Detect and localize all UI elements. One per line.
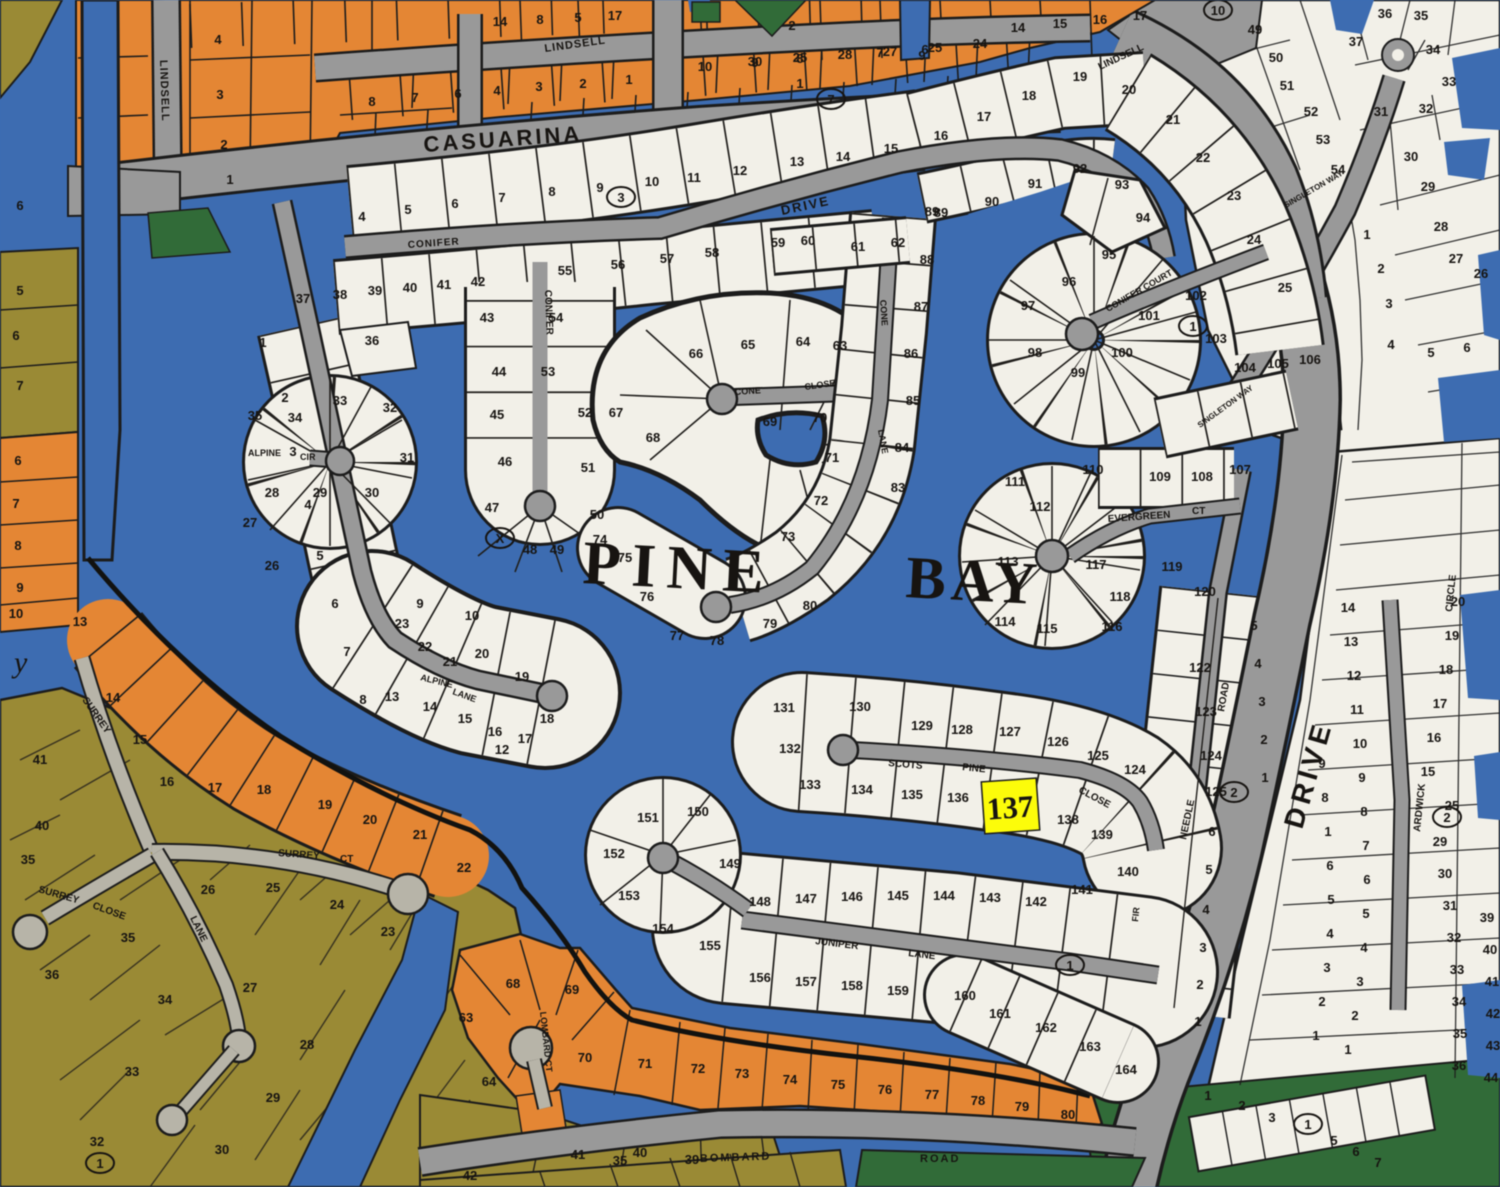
svg-text:14: 14 <box>836 149 851 164</box>
svg-text:26: 26 <box>265 558 279 573</box>
svg-text:72: 72 <box>814 493 828 508</box>
svg-text:32: 32 <box>1419 101 1433 116</box>
svg-text:68: 68 <box>506 976 520 991</box>
svg-text:10: 10 <box>645 174 659 189</box>
svg-text:79: 79 <box>763 616 777 631</box>
svg-text:6: 6 <box>921 42 928 57</box>
svg-text:40: 40 <box>403 280 417 295</box>
svg-text:40: 40 <box>35 818 49 833</box>
svg-text:43: 43 <box>1486 1038 1500 1053</box>
svg-text:31: 31 <box>1374 104 1388 119</box>
svg-text:7: 7 <box>876 45 883 60</box>
svg-text:100: 100 <box>1111 345 1133 360</box>
svg-text:14: 14 <box>106 690 121 705</box>
svg-text:50: 50 <box>590 507 604 522</box>
svg-text:CT: CT <box>340 854 353 865</box>
svg-text:8: 8 <box>536 12 543 27</box>
svg-text:6: 6 <box>1326 858 1333 873</box>
svg-text:16: 16 <box>1093 12 1107 27</box>
svg-text:20: 20 <box>475 646 489 661</box>
svg-text:45: 45 <box>490 407 504 422</box>
svg-text:2: 2 <box>1377 261 1384 276</box>
svg-text:70: 70 <box>813 410 827 425</box>
svg-text:42: 42 <box>463 1168 477 1183</box>
svg-text:3: 3 <box>1385 296 1392 311</box>
svg-text:162: 162 <box>1035 1020 1057 1035</box>
svg-text:35: 35 <box>613 1153 627 1168</box>
svg-text:137: 137 <box>986 788 1035 826</box>
svg-text:17: 17 <box>608 8 622 23</box>
svg-text:35: 35 <box>1414 8 1428 23</box>
svg-text:31: 31 <box>400 450 414 465</box>
svg-text:2: 2 <box>1260 732 1267 747</box>
svg-text:141: 141 <box>1071 882 1093 897</box>
svg-text:131: 131 <box>773 700 795 715</box>
svg-text:126: 126 <box>1047 734 1069 749</box>
svg-text:80: 80 <box>803 598 817 613</box>
svg-text:146: 146 <box>841 889 863 904</box>
svg-text:103: 103 <box>1205 331 1227 346</box>
svg-text:113: 113 <box>998 554 1019 569</box>
svg-text:31: 31 <box>1443 898 1457 913</box>
svg-text:13: 13 <box>73 614 87 629</box>
svg-text:13: 13 <box>385 689 399 704</box>
svg-text:4: 4 <box>1387 337 1395 352</box>
svg-text:16: 16 <box>160 774 174 789</box>
svg-text:9: 9 <box>596 180 603 195</box>
svg-text:3: 3 <box>289 444 296 459</box>
svg-text:98: 98 <box>1028 345 1042 360</box>
svg-text:40: 40 <box>1483 942 1497 957</box>
svg-text:24: 24 <box>1247 232 1262 247</box>
svg-text:77: 77 <box>670 628 684 643</box>
svg-text:160: 160 <box>954 988 976 1003</box>
svg-text:54: 54 <box>1331 162 1346 177</box>
svg-text:15: 15 <box>458 711 472 726</box>
svg-text:53: 53 <box>1316 132 1330 147</box>
svg-text:94: 94 <box>1136 210 1151 225</box>
svg-text:109: 109 <box>1149 469 1171 484</box>
svg-text:32: 32 <box>383 400 397 415</box>
svg-text:32: 32 <box>90 1134 104 1149</box>
svg-text:24: 24 <box>973 36 988 51</box>
svg-text:133: 133 <box>799 777 821 792</box>
svg-text:44: 44 <box>492 364 507 379</box>
svg-text:21: 21 <box>443 654 457 669</box>
svg-text:149: 149 <box>719 856 741 871</box>
svg-text:77: 77 <box>925 1087 939 1102</box>
svg-text:73: 73 <box>735 1066 749 1081</box>
svg-text:8: 8 <box>368 94 375 109</box>
svg-text:128: 128 <box>951 722 973 737</box>
svg-text:2: 2 <box>788 18 795 33</box>
svg-text:151: 151 <box>637 810 659 825</box>
svg-text:52: 52 <box>578 405 592 420</box>
svg-text:6: 6 <box>1363 872 1370 887</box>
svg-text:154: 154 <box>652 921 674 936</box>
svg-text:34: 34 <box>288 410 303 425</box>
svg-text:7: 7 <box>411 90 418 105</box>
svg-text:92: 92 <box>1073 161 1087 176</box>
svg-text:39: 39 <box>1480 910 1494 925</box>
svg-text:1: 1 <box>96 1156 103 1171</box>
svg-text:12: 12 <box>495 742 509 757</box>
svg-text:33: 33 <box>125 1064 139 1079</box>
svg-text:BAY: BAY <box>904 544 1043 617</box>
svg-text:52: 52 <box>1304 104 1318 119</box>
svg-text:3: 3 <box>1258 694 1265 709</box>
svg-text:36: 36 <box>45 967 59 982</box>
svg-text:17: 17 <box>1433 696 1447 711</box>
svg-text:78: 78 <box>710 633 724 648</box>
svg-text:51: 51 <box>581 460 595 475</box>
svg-text:15: 15 <box>1421 764 1435 779</box>
svg-text:3: 3 <box>1268 1110 1275 1125</box>
svg-text:7: 7 <box>343 644 350 659</box>
svg-text:23: 23 <box>1227 188 1241 203</box>
svg-text:127: 127 <box>999 724 1021 739</box>
svg-text:1: 1 <box>1363 227 1370 242</box>
svg-text:10: 10 <box>9 606 23 621</box>
svg-text:22: 22 <box>457 860 471 875</box>
svg-text:69: 69 <box>565 982 579 997</box>
svg-text:41: 41 <box>571 1147 585 1162</box>
svg-text:8: 8 <box>14 538 21 553</box>
svg-text:83: 83 <box>891 480 905 495</box>
svg-text:34: 34 <box>1452 994 1467 1009</box>
svg-text:7: 7 <box>827 92 834 107</box>
svg-text:9: 9 <box>16 580 23 595</box>
svg-text:30: 30 <box>365 485 379 500</box>
svg-text:44: 44 <box>1484 1070 1499 1085</box>
svg-text:139: 139 <box>1091 827 1113 842</box>
svg-text:6: 6 <box>331 596 338 611</box>
svg-text:5: 5 <box>1205 862 1212 877</box>
svg-text:85: 85 <box>906 393 920 408</box>
svg-text:112: 112 <box>1030 499 1051 514</box>
svg-text:80: 80 <box>1061 1107 1075 1122</box>
svg-text:86: 86 <box>904 346 918 361</box>
svg-text:27: 27 <box>243 515 257 530</box>
svg-text:75: 75 <box>618 550 632 565</box>
svg-text:22: 22 <box>418 639 432 654</box>
svg-text:104: 104 <box>1234 360 1256 375</box>
svg-text:35: 35 <box>1453 1026 1467 1041</box>
svg-text:1: 1 <box>796 76 803 91</box>
svg-text:51: 51 <box>1280 78 1294 93</box>
svg-text:74: 74 <box>593 532 608 547</box>
svg-text:3: 3 <box>1356 974 1363 989</box>
svg-text:5: 5 <box>1327 892 1334 907</box>
svg-text:150: 150 <box>687 804 709 819</box>
svg-text:47: 47 <box>485 500 499 515</box>
svg-text:4: 4 <box>214 32 222 47</box>
svg-text:FIR: FIR <box>1130 906 1142 922</box>
svg-text:17: 17 <box>1133 8 1147 23</box>
svg-text:17: 17 <box>977 109 991 124</box>
svg-text:53: 53 <box>541 364 555 379</box>
svg-text:10: 10 <box>698 59 712 74</box>
svg-text:30: 30 <box>215 1142 229 1157</box>
svg-text:2: 2 <box>579 76 586 91</box>
svg-text:18: 18 <box>1439 662 1453 677</box>
svg-text:14: 14 <box>1341 600 1356 615</box>
svg-text:3: 3 <box>216 87 223 102</box>
svg-text:6: 6 <box>454 86 461 101</box>
svg-text:21: 21 <box>413 827 427 842</box>
svg-text:61: 61 <box>851 239 865 254</box>
svg-text:138: 138 <box>1057 812 1079 827</box>
svg-text:71: 71 <box>638 1056 652 1071</box>
svg-text:96: 96 <box>1062 274 1076 289</box>
svg-text:10: 10 <box>465 608 479 623</box>
svg-text:1: 1 <box>1344 1042 1351 1057</box>
svg-text:37: 37 <box>296 291 310 306</box>
svg-text:7: 7 <box>498 190 505 205</box>
svg-text:119: 119 <box>1162 559 1183 574</box>
svg-text:108: 108 <box>1191 469 1213 484</box>
svg-text:153: 153 <box>618 888 640 903</box>
svg-text:4: 4 <box>358 209 366 224</box>
svg-text:63: 63 <box>459 1010 473 1025</box>
svg-text:33: 33 <box>333 393 347 408</box>
svg-text:18: 18 <box>540 711 554 726</box>
svg-text:15: 15 <box>1053 16 1067 31</box>
svg-text:142: 142 <box>1025 894 1047 909</box>
svg-text:145: 145 <box>887 888 909 903</box>
svg-text:y: y <box>11 646 28 679</box>
svg-text:36: 36 <box>365 333 379 348</box>
svg-text:24: 24 <box>330 897 345 912</box>
svg-text:122: 122 <box>1189 660 1211 675</box>
svg-text:21: 21 <box>1166 112 1180 127</box>
svg-text:32: 32 <box>1447 930 1461 945</box>
svg-text:46: 46 <box>498 454 512 469</box>
svg-text:123: 123 <box>1195 704 1217 719</box>
svg-text:18: 18 <box>257 782 271 797</box>
svg-text:99: 99 <box>1071 365 1085 380</box>
svg-text:8: 8 <box>1360 804 1367 819</box>
svg-text:87: 87 <box>914 299 928 314</box>
svg-text:1: 1 <box>625 72 632 87</box>
svg-text:10: 10 <box>1353 736 1367 751</box>
svg-text:14: 14 <box>1011 20 1026 35</box>
svg-text:23: 23 <box>395 616 409 631</box>
svg-text:8: 8 <box>1321 790 1328 805</box>
svg-text:93: 93 <box>1115 177 1129 192</box>
svg-text:59: 59 <box>771 235 785 250</box>
svg-text:107: 107 <box>1229 462 1251 477</box>
svg-text:124: 124 <box>1200 748 1222 763</box>
svg-text:16: 16 <box>934 128 948 143</box>
svg-text:102: 102 <box>1185 288 1207 303</box>
svg-text:25: 25 <box>266 880 280 895</box>
svg-text:3: 3 <box>535 79 542 94</box>
svg-text:41: 41 <box>1485 974 1499 989</box>
svg-text:132: 132 <box>779 741 801 756</box>
svg-text:26: 26 <box>1474 266 1488 281</box>
svg-text:91: 91 <box>1028 176 1042 191</box>
svg-text:1: 1 <box>1189 319 1196 334</box>
svg-text:14: 14 <box>493 14 508 29</box>
svg-text:2: 2 <box>1351 1008 1358 1023</box>
svg-text:26: 26 <box>201 882 215 897</box>
svg-text:5: 5 <box>574 10 581 25</box>
svg-text:23: 23 <box>381 924 395 939</box>
svg-text:3: 3 <box>1199 940 1206 955</box>
svg-text:129: 129 <box>911 718 933 733</box>
svg-text:41: 41 <box>437 277 451 292</box>
svg-text:2: 2 <box>1238 1098 1245 1113</box>
svg-text:1: 1 <box>1066 958 1073 973</box>
svg-text:12: 12 <box>1347 668 1361 683</box>
svg-text:28: 28 <box>838 47 852 62</box>
svg-text:110: 110 <box>1083 462 1104 477</box>
svg-text:130: 130 <box>849 699 871 714</box>
svg-text:116: 116 <box>1102 619 1123 634</box>
svg-text:74: 74 <box>783 1072 798 1087</box>
svg-text:9: 9 <box>751 55 758 70</box>
svg-text:16: 16 <box>488 724 502 739</box>
svg-text:41: 41 <box>33 752 47 767</box>
svg-text:35: 35 <box>121 930 135 945</box>
svg-text:5: 5 <box>16 283 23 298</box>
svg-text:20: 20 <box>1122 82 1136 97</box>
svg-text:79: 79 <box>1015 1099 1029 1114</box>
svg-text:5: 5 <box>1362 906 1369 921</box>
svg-text:36: 36 <box>1452 1058 1466 1073</box>
svg-text:88: 88 <box>920 252 934 267</box>
svg-text:7: 7 <box>12 496 19 511</box>
svg-text:136: 136 <box>947 790 969 805</box>
svg-text:64: 64 <box>796 334 811 349</box>
svg-text:120: 120 <box>1194 584 1216 599</box>
svg-text:13: 13 <box>1344 634 1358 649</box>
svg-text:140: 140 <box>1117 864 1139 879</box>
svg-text:76: 76 <box>878 1082 892 1097</box>
svg-text:3: 3 <box>617 190 624 205</box>
svg-text:95: 95 <box>1102 247 1116 262</box>
svg-text:15: 15 <box>133 732 147 747</box>
svg-text:42: 42 <box>471 274 485 289</box>
svg-text:19: 19 <box>1073 69 1087 84</box>
svg-text:125: 125 <box>1205 784 1227 799</box>
svg-text:35: 35 <box>21 852 35 867</box>
svg-text:43: 43 <box>480 310 494 325</box>
svg-text:11: 11 <box>1350 702 1364 717</box>
svg-text:14: 14 <box>423 699 438 714</box>
svg-text:29: 29 <box>313 485 327 500</box>
svg-text:12: 12 <box>733 163 747 178</box>
svg-text:29: 29 <box>1433 834 1447 849</box>
svg-text:BOMBARD: BOMBARD <box>700 1151 772 1165</box>
svg-text:35: 35 <box>248 408 262 423</box>
svg-text:134: 134 <box>851 782 873 797</box>
svg-text:152: 152 <box>603 846 625 861</box>
svg-text:11: 11 <box>687 170 701 185</box>
svg-text:56: 56 <box>611 257 625 272</box>
svg-text:20: 20 <box>1451 594 1465 609</box>
svg-text:19: 19 <box>515 669 529 684</box>
svg-text:2: 2 <box>1230 785 1237 800</box>
svg-text:4: 4 <box>1326 926 1334 941</box>
svg-text:3: 3 <box>1323 960 1330 975</box>
svg-text:39: 39 <box>685 1152 699 1167</box>
svg-text:17: 17 <box>208 780 222 795</box>
svg-text:15: 15 <box>884 141 898 156</box>
svg-text:16: 16 <box>1427 730 1441 745</box>
svg-text:70: 70 <box>578 1050 592 1065</box>
svg-text:X: X <box>496 531 505 546</box>
svg-text:90: 90 <box>985 194 999 209</box>
svg-text:27: 27 <box>243 980 257 995</box>
svg-text:30: 30 <box>1438 866 1452 881</box>
svg-text:CT: CT <box>1192 506 1205 517</box>
svg-text:124: 124 <box>1124 762 1146 777</box>
svg-text:49: 49 <box>1248 22 1262 37</box>
svg-text:58: 58 <box>705 245 719 260</box>
svg-text:33: 33 <box>1442 74 1456 89</box>
svg-text:ALPINE: ALPINE <box>248 448 281 458</box>
svg-text:5: 5 <box>404 202 411 217</box>
svg-text:5: 5 <box>1330 1133 1337 1148</box>
svg-text:18: 18 <box>1022 88 1036 103</box>
svg-text:161: 161 <box>989 1006 1011 1021</box>
svg-text:97: 97 <box>1021 298 1035 313</box>
svg-text:4: 4 <box>1360 940 1368 955</box>
svg-text:143: 143 <box>979 890 1001 905</box>
svg-text:CONE: CONE <box>734 385 761 397</box>
svg-text:29: 29 <box>266 1090 280 1105</box>
svg-text:164: 164 <box>1115 1062 1137 1077</box>
svg-text:2: 2 <box>1318 994 1325 1009</box>
svg-text:125: 125 <box>1087 748 1109 763</box>
svg-text:2: 2 <box>281 390 288 405</box>
svg-text:105: 105 <box>1267 356 1289 371</box>
svg-text:5: 5 <box>1427 345 1434 360</box>
svg-text:PINE: PINE <box>581 529 776 607</box>
svg-text:75: 75 <box>831 1077 845 1092</box>
svg-text:27: 27 <box>1449 251 1463 266</box>
svg-text:5: 5 <box>1250 618 1257 633</box>
svg-text:27: 27 <box>883 44 897 59</box>
svg-text:9: 9 <box>416 596 423 611</box>
svg-text:147: 147 <box>795 891 817 906</box>
svg-text:38: 38 <box>333 287 347 302</box>
svg-text:19: 19 <box>1445 628 1459 643</box>
svg-text:39: 39 <box>368 283 382 298</box>
svg-text:1: 1 <box>1204 1088 1211 1103</box>
svg-text:69: 69 <box>763 414 777 429</box>
svg-text:1: 1 <box>1261 770 1268 785</box>
svg-text:6: 6 <box>14 453 21 468</box>
svg-text:106: 106 <box>1299 352 1321 367</box>
svg-text:36: 36 <box>1378 6 1392 21</box>
svg-text:159: 159 <box>887 983 909 998</box>
svg-text:144: 144 <box>933 888 955 903</box>
svg-text:6: 6 <box>16 198 23 213</box>
svg-text:42: 42 <box>1486 1006 1500 1021</box>
svg-text:25: 25 <box>928 40 942 55</box>
svg-text:17: 17 <box>518 731 532 746</box>
svg-text:19: 19 <box>318 797 332 812</box>
svg-text:5: 5 <box>316 548 323 563</box>
svg-text:34: 34 <box>158 992 173 1007</box>
svg-text:LINDSELL: LINDSELL <box>157 60 171 122</box>
svg-text:73: 73 <box>781 529 795 544</box>
svg-text:68: 68 <box>646 430 660 445</box>
svg-text:64: 64 <box>482 1074 497 1089</box>
